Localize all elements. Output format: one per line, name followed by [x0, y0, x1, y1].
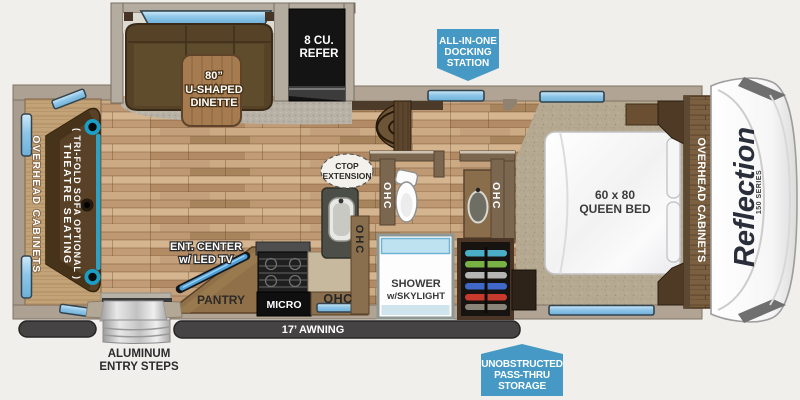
svg-text:( TRI-FOLD SOFA OPTIONAL ): ( TRI-FOLD SOFA OPTIONAL ) [72, 128, 82, 280]
svg-text:U-SHAPED: U-SHAPED [185, 84, 243, 96]
svg-text:OHC: OHC [490, 182, 502, 210]
svg-text:PANTRY: PANTRY [197, 293, 245, 307]
svg-text:150 SERIES: 150 SERIES [756, 170, 763, 214]
svg-text:60 x 80: 60 x 80 [595, 188, 635, 202]
svg-text:8 CU.: 8 CU. [304, 35, 333, 47]
svg-text:80”: 80” [205, 70, 223, 82]
svg-text:ALUMINUM: ALUMINUM [108, 348, 171, 360]
svg-text:MICRO: MICRO [267, 299, 302, 311]
svg-text:THEATRE SEATING: THEATRE SEATING [61, 143, 73, 265]
svg-text:DOCKING: DOCKING [444, 47, 491, 58]
svg-text:OVERHEAD CABINETS: OVERHEAD CABINETS [695, 137, 707, 262]
svg-text:STATION: STATION [447, 58, 489, 69]
svg-text:w/SKYLIGHT: w/SKYLIGHT [386, 291, 445, 302]
svg-text:ENT. CENTER: ENT. CENTER [170, 241, 242, 253]
svg-text:QUEEN BED: QUEEN BED [579, 202, 651, 216]
svg-text:CTOP: CTOP [335, 161, 359, 171]
svg-text:OHC: OHC [353, 225, 365, 255]
svg-text:ENTRY STEPS: ENTRY STEPS [99, 361, 179, 373]
svg-text:OVERHEAD CABINETS: OVERHEAD CABINETS [30, 135, 42, 273]
svg-text:REFER: REFER [300, 48, 340, 60]
svg-text:OHC: OHC [323, 292, 352, 306]
svg-text:17’ AWNING: 17’ AWNING [282, 324, 345, 336]
svg-text:UNOBSTRUCTED: UNOBSTRUCTED [481, 359, 563, 370]
svg-text:w/ LED TV: w/ LED TV [178, 254, 233, 266]
svg-text:STORAGE: STORAGE [498, 381, 546, 392]
svg-text:ALL-IN-ONE: ALL-IN-ONE [439, 36, 497, 47]
svg-text:DINETTE: DINETTE [190, 97, 237, 109]
svg-text:SHOWER: SHOWER [391, 278, 441, 290]
svg-text:EXTENSION: EXTENSION [322, 171, 371, 181]
svg-text:PASS-THRU: PASS-THRU [494, 370, 550, 381]
svg-text:OHC: OHC [381, 182, 393, 210]
